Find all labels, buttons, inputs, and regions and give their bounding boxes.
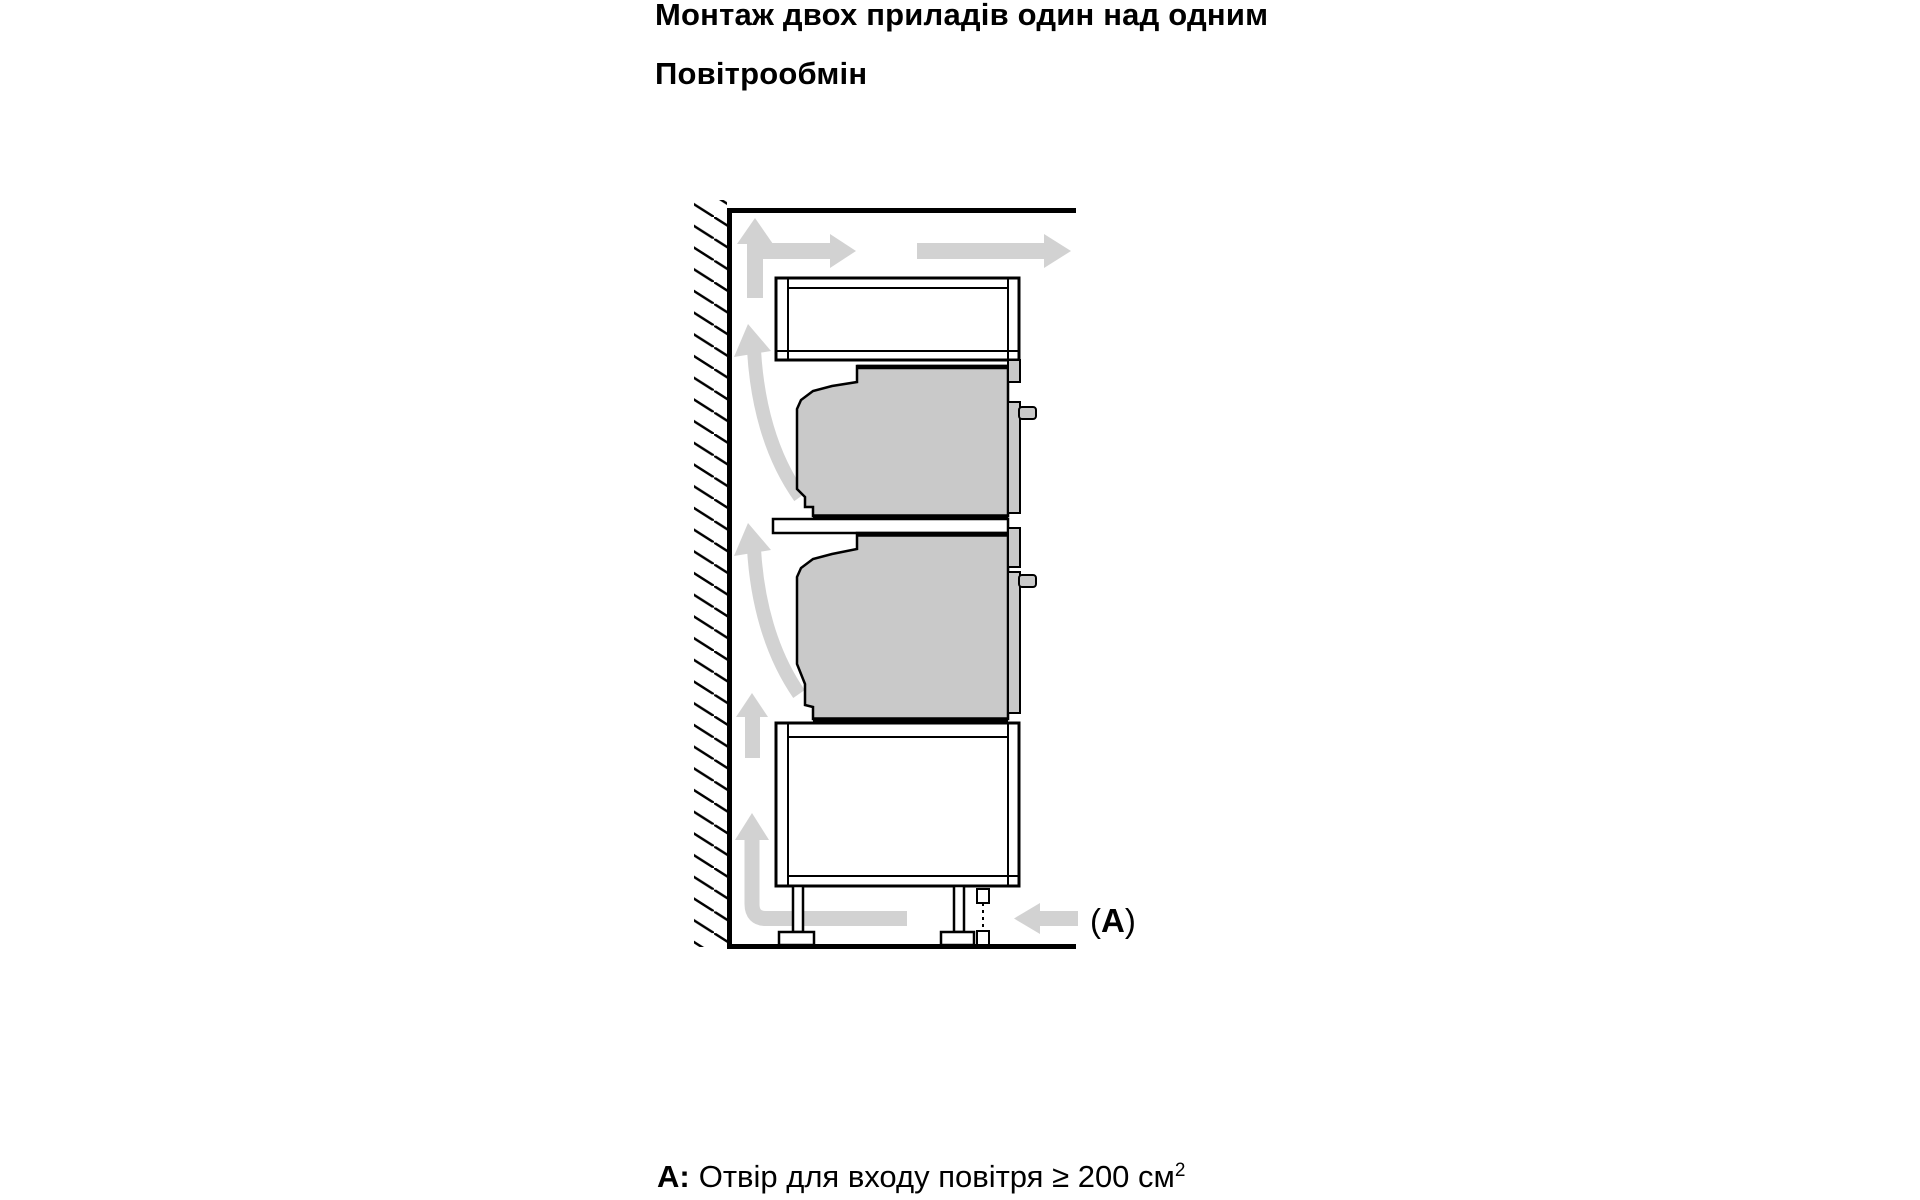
legend-text: Отвір для входу повітря ≥ 200 см — [699, 1159, 1175, 1194]
intermediate-shelf — [773, 519, 1008, 533]
upper-appliance-door — [1008, 402, 1020, 513]
wall-hatching — [694, 200, 727, 947]
upper-appliance-handle — [1019, 407, 1036, 419]
air-inlet-arrow-icon — [1014, 903, 1078, 934]
lower-appliance-door — [1008, 572, 1020, 713]
bottom-cabinet — [776, 723, 1019, 886]
upper-appliance — [797, 360, 1036, 517]
installation-diagram — [0, 0, 1920, 1200]
air-inlet-label: (A) — [1090, 904, 1136, 937]
plinth-clip-bottom — [977, 931, 989, 945]
legend-caption: A:Отвір для входу повітря ≥ 200 см2 — [657, 1161, 1185, 1197]
upper-appliance-control-panel — [1008, 360, 1020, 382]
plinth-clip-top — [977, 889, 989, 903]
lower-appliance-handle — [1019, 575, 1036, 587]
airflow-up-arrow-bottom-icon — [736, 693, 768, 758]
inlet-label-paren-close: ) — [1125, 902, 1136, 939]
cabinet-foot — [779, 932, 814, 945]
airflow-curved-arrow-lower-icon — [734, 523, 799, 694]
legend-superscript: 2 — [1175, 1160, 1186, 1181]
cabinet-leg — [793, 886, 803, 932]
inlet-label-letter: A — [1101, 902, 1125, 939]
airflow-right-arrow-right-icon — [917, 234, 1071, 268]
lower-appliance — [797, 528, 1036, 720]
legend-key: A: — [657, 1159, 690, 1194]
cabinet-foot — [941, 932, 974, 945]
airflow-right-arrow-left-icon — [763, 234, 856, 268]
cabinet-leg — [954, 886, 964, 932]
inlet-label-paren-open: ( — [1090, 902, 1101, 939]
top-cabinet — [776, 278, 1019, 360]
lower-appliance-control-panel — [1008, 528, 1020, 567]
manual-page: Монтаж двох приладів один над одним Пові… — [0, 0, 1920, 1200]
